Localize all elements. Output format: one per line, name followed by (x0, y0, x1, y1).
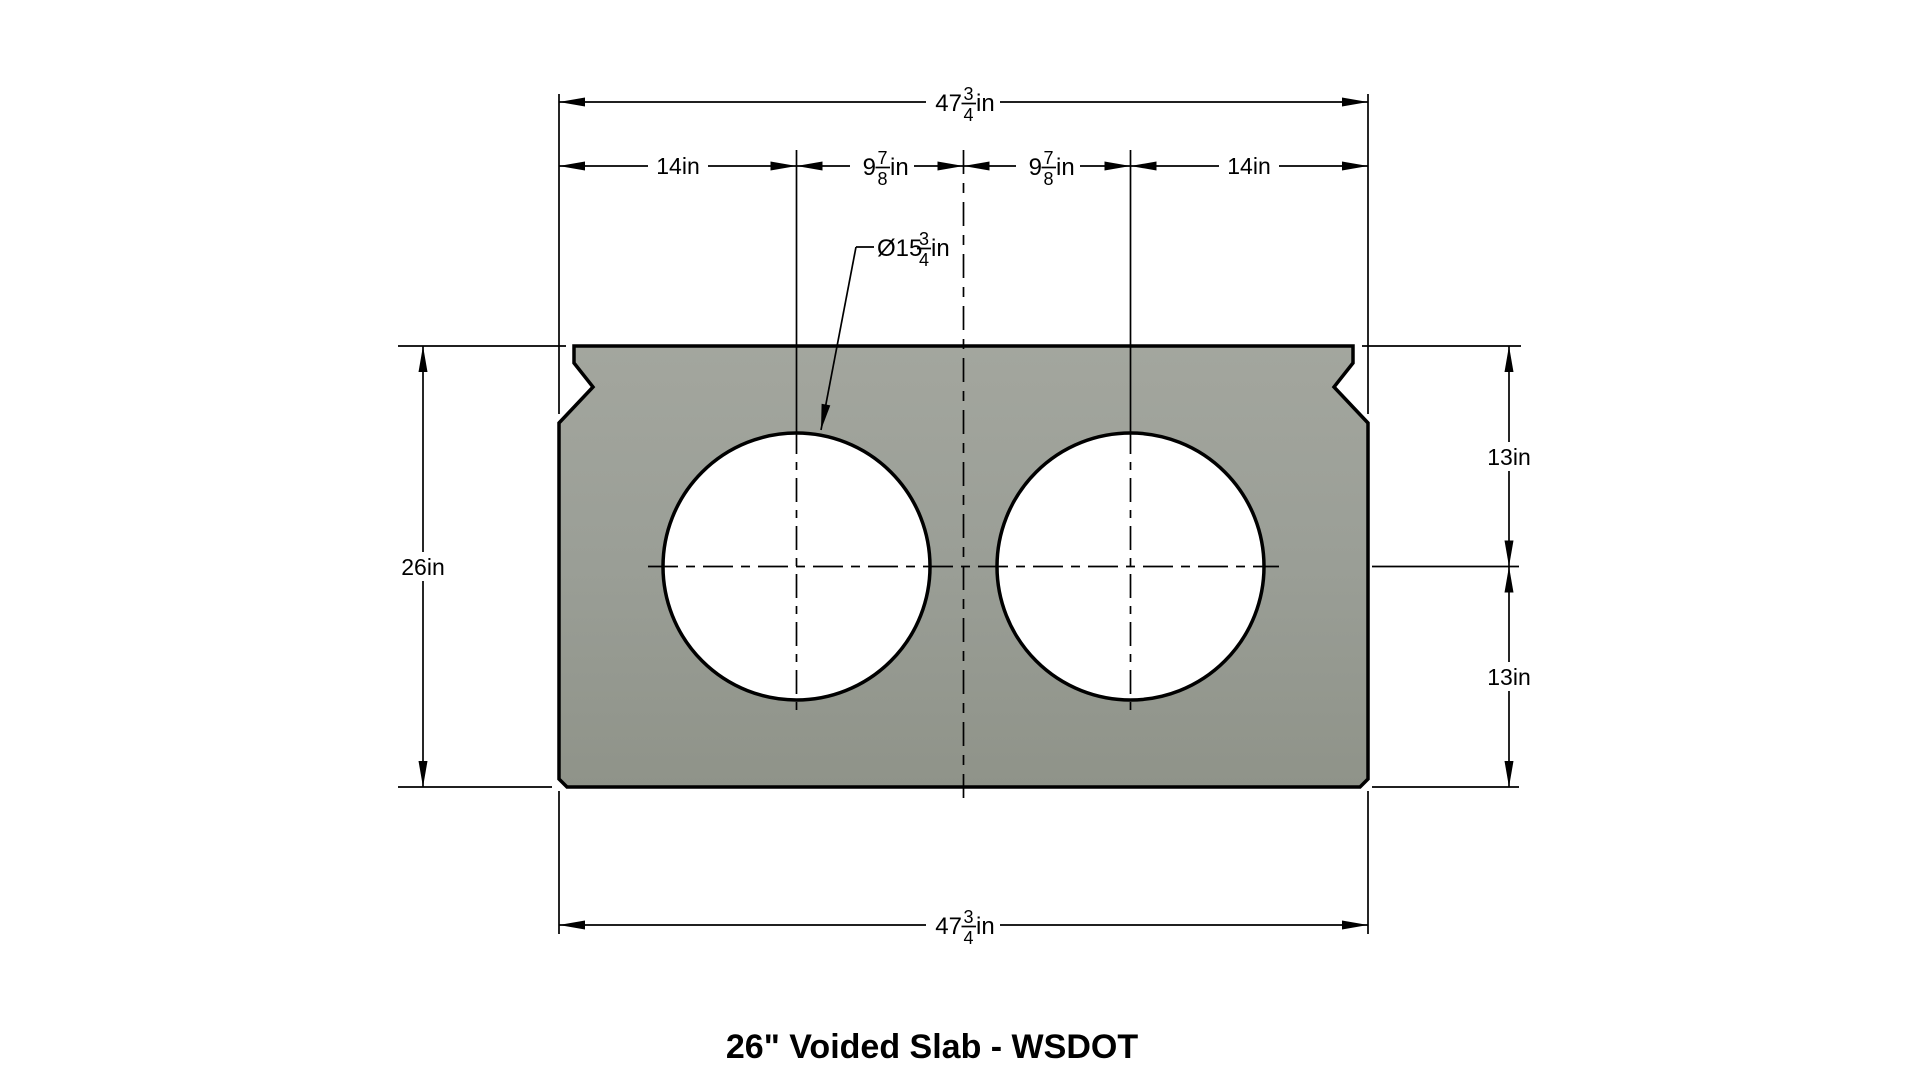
dim-seg-midleft-whole: 9 (863, 154, 876, 181)
dim-width-bottom-num: 3 (963, 907, 973, 927)
dim-width-top-unit: in (976, 90, 995, 117)
dim-width-bottom-den: 4 (963, 928, 973, 948)
dim-overall-width-top: 47 3 4 in (559, 80, 1368, 125)
dim-width-top-whole: 47 (935, 90, 962, 117)
dim-width-bottom-unit: in (976, 913, 995, 940)
dim-seg-midleft-unit: in (890, 154, 909, 181)
dim-width-top-den: 4 (963, 105, 973, 125)
void-dia-den: 4 (919, 250, 929, 270)
dim-seg-right-label: 14in (1227, 153, 1270, 179)
void-dia-num: 3 (919, 229, 929, 249)
dim-seg-left-label: 14in (656, 153, 699, 179)
dim-half-bottom-label: 13in (1487, 664, 1530, 690)
dim-width-bottom-whole: 47 (935, 913, 962, 940)
void-dia-unit: in (931, 235, 950, 262)
drawing-canvas: 47 3 4 in 14in 9 7 8 in 9 7 8 in (0, 0, 1920, 1080)
dim-height-label: 26in (401, 554, 444, 580)
dim-seg-midright-whole: 9 (1029, 154, 1042, 181)
drawing-title: 26" Voided Slab - WSDOT (726, 1028, 1138, 1066)
void-dia-whole: Ø15 (877, 235, 922, 262)
dim-half-top-label: 13in (1487, 444, 1530, 470)
dim-overall-width-bottom: 47 3 4 in (559, 903, 1368, 948)
dim-seg-midright-den: 8 (1043, 169, 1053, 189)
dim-seg-midleft-num: 7 (877, 148, 887, 168)
voided-slab-drawing: 47 3 4 in 14in 9 7 8 in 9 7 8 in (0, 0, 1920, 1080)
dim-seg-midright-num: 7 (1043, 148, 1053, 168)
dim-width-top-num: 3 (963, 84, 973, 104)
dim-segment-row: 14in 9 7 8 in 9 7 8 in 14in (559, 143, 1368, 189)
dim-height-left: 26in (394, 346, 452, 787)
dim-seg-midright-unit: in (1056, 154, 1075, 181)
dim-seg-midleft-den: 8 (877, 169, 887, 189)
